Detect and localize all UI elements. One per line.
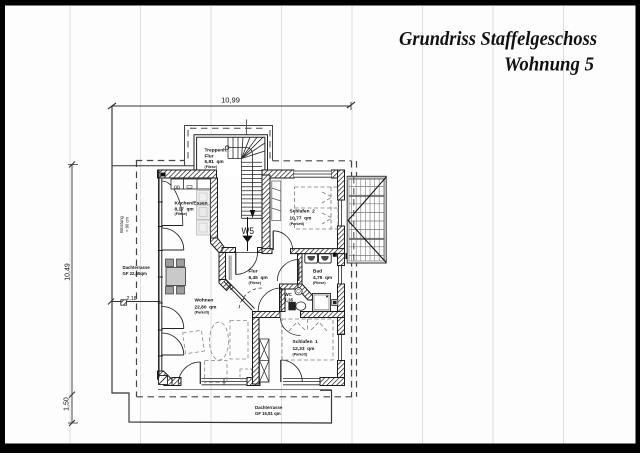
svg-text:Schlafen 1: Schlafen 1 <box>293 339 319 345</box>
svg-text:Treppenh.: Treppenh. <box>205 148 228 154</box>
svg-text:(Parkett): (Parkett) <box>293 353 308 357</box>
svg-text:1,35: 1,35 <box>285 298 294 303</box>
svg-text:Brüstung: Brüstung <box>119 215 124 232</box>
svg-text:(Fliese): (Fliese) <box>175 212 188 216</box>
svg-text:Wohnen: Wohnen <box>195 298 214 304</box>
svg-text:(Fliese): (Fliese) <box>249 281 262 285</box>
svg-text:GF 15,81 qm: GF 15,81 qm <box>255 411 281 416</box>
svg-text:Bad: Bad <box>313 269 322 275</box>
svg-text:1,50: 1,50 <box>64 397 71 411</box>
svg-text:Flur: Flur <box>249 269 258 275</box>
svg-text:WC: WC <box>285 292 293 297</box>
svg-text:Dachterrasse: Dachterrasse <box>255 405 283 410</box>
svg-text:GF 22,65qm: GF 22,65qm <box>123 271 148 276</box>
svg-text:Grundriss Staffelgeschoss: Grundriss Staffelgeschoss <box>399 28 597 50</box>
svg-text:> 90 cm: > 90 cm <box>125 216 130 232</box>
svg-text:Kochen/Essen: Kochen/Essen <box>175 201 208 207</box>
svg-text:22,80 qm: 22,80 qm <box>195 304 217 310</box>
svg-text:Flur: Flur <box>205 153 214 159</box>
svg-text:12,33 qm: 12,33 qm <box>293 346 315 352</box>
svg-text:(Parkett): (Parkett) <box>195 311 210 315</box>
svg-text:Schlafen 2: Schlafen 2 <box>290 209 316 215</box>
svg-text:(Fliese): (Fliese) <box>313 281 326 285</box>
svg-text:10,77 qm: 10,77 qm <box>290 216 312 222</box>
svg-text:Dachterrasse: Dachterrasse <box>123 265 151 270</box>
svg-text:Wohnung 5: Wohnung 5 <box>504 54 594 76</box>
svg-text:(Parkett): (Parkett) <box>290 222 305 226</box>
svg-text:2,18: 2,18 <box>126 296 136 302</box>
svg-text:10,49: 10,49 <box>65 263 72 281</box>
svg-text:(Fliese): (Fliese) <box>205 165 218 169</box>
svg-text:10,99: 10,99 <box>221 96 240 105</box>
